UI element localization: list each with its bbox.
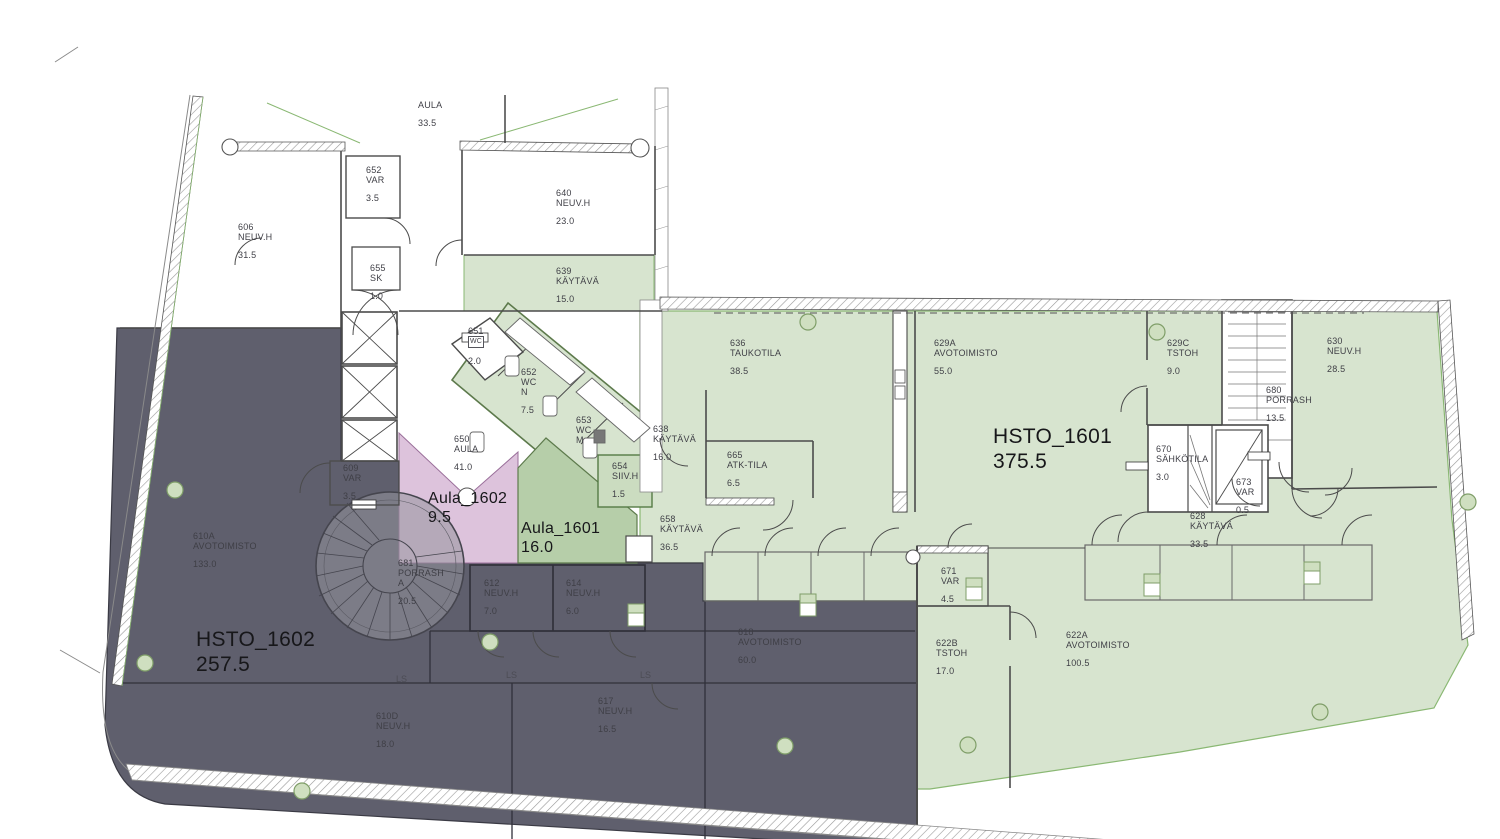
floor-plan-drawing (0, 0, 1500, 839)
spiral-stair (316, 492, 464, 640)
floor-plan: AULA33.5652VAR3.5606NEUV.H31.5640NEUV.H2… (0, 0, 1500, 839)
